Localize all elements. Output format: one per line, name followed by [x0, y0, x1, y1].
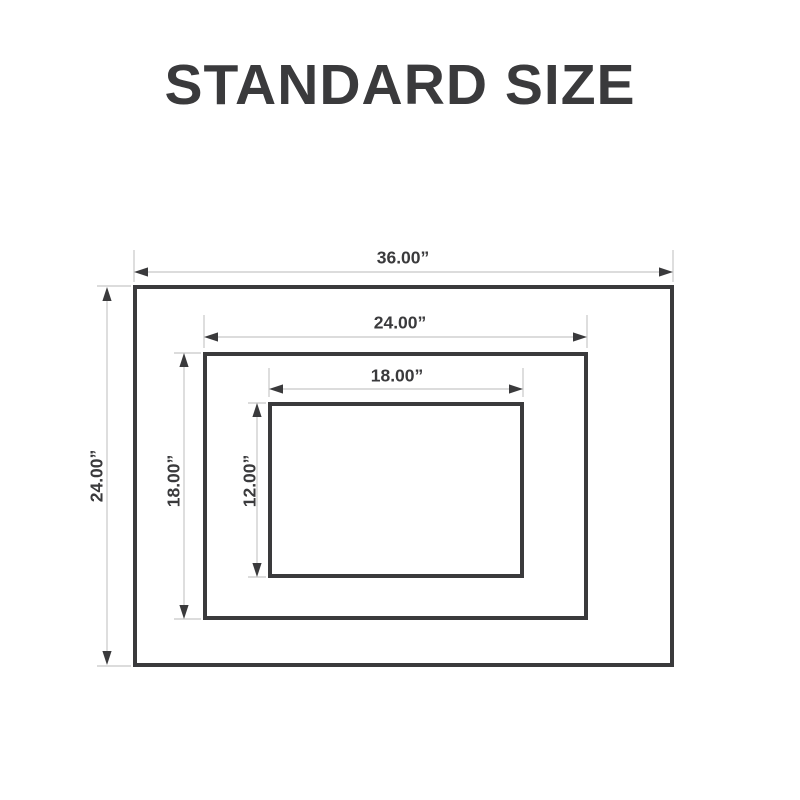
inner-height-label: 12.00”	[241, 455, 259, 508]
dimension-drawing	[0, 0, 800, 800]
size-rectangles	[135, 287, 672, 665]
size-diagram-canvas: STANDARD SIZE	[0, 0, 800, 800]
outer-width-label: 36.00”	[377, 249, 430, 267]
arrow-right-icon	[573, 332, 587, 341]
middle-rectangle	[205, 354, 586, 618]
arrow-down-icon	[179, 605, 188, 619]
arrow-left-icon	[134, 267, 148, 276]
arrow-right-icon	[659, 267, 673, 276]
outer-height-label: 24.00”	[88, 450, 106, 503]
middle-width-label: 24.00”	[374, 314, 427, 332]
arrow-up-icon	[179, 353, 188, 367]
arrow-up-icon	[102, 287, 111, 301]
inner-width-label: 18.00”	[371, 367, 424, 385]
middle-height-label: 18.00”	[165, 455, 183, 508]
arrow-down-icon	[252, 563, 261, 577]
arrow-right-icon	[509, 384, 523, 393]
arrow-left-icon	[269, 384, 283, 393]
arrow-down-icon	[102, 651, 111, 665]
inner-rectangle	[270, 404, 522, 576]
outer-rectangle	[135, 287, 672, 665]
arrow-up-icon	[252, 403, 261, 417]
arrow-left-icon	[204, 332, 218, 341]
